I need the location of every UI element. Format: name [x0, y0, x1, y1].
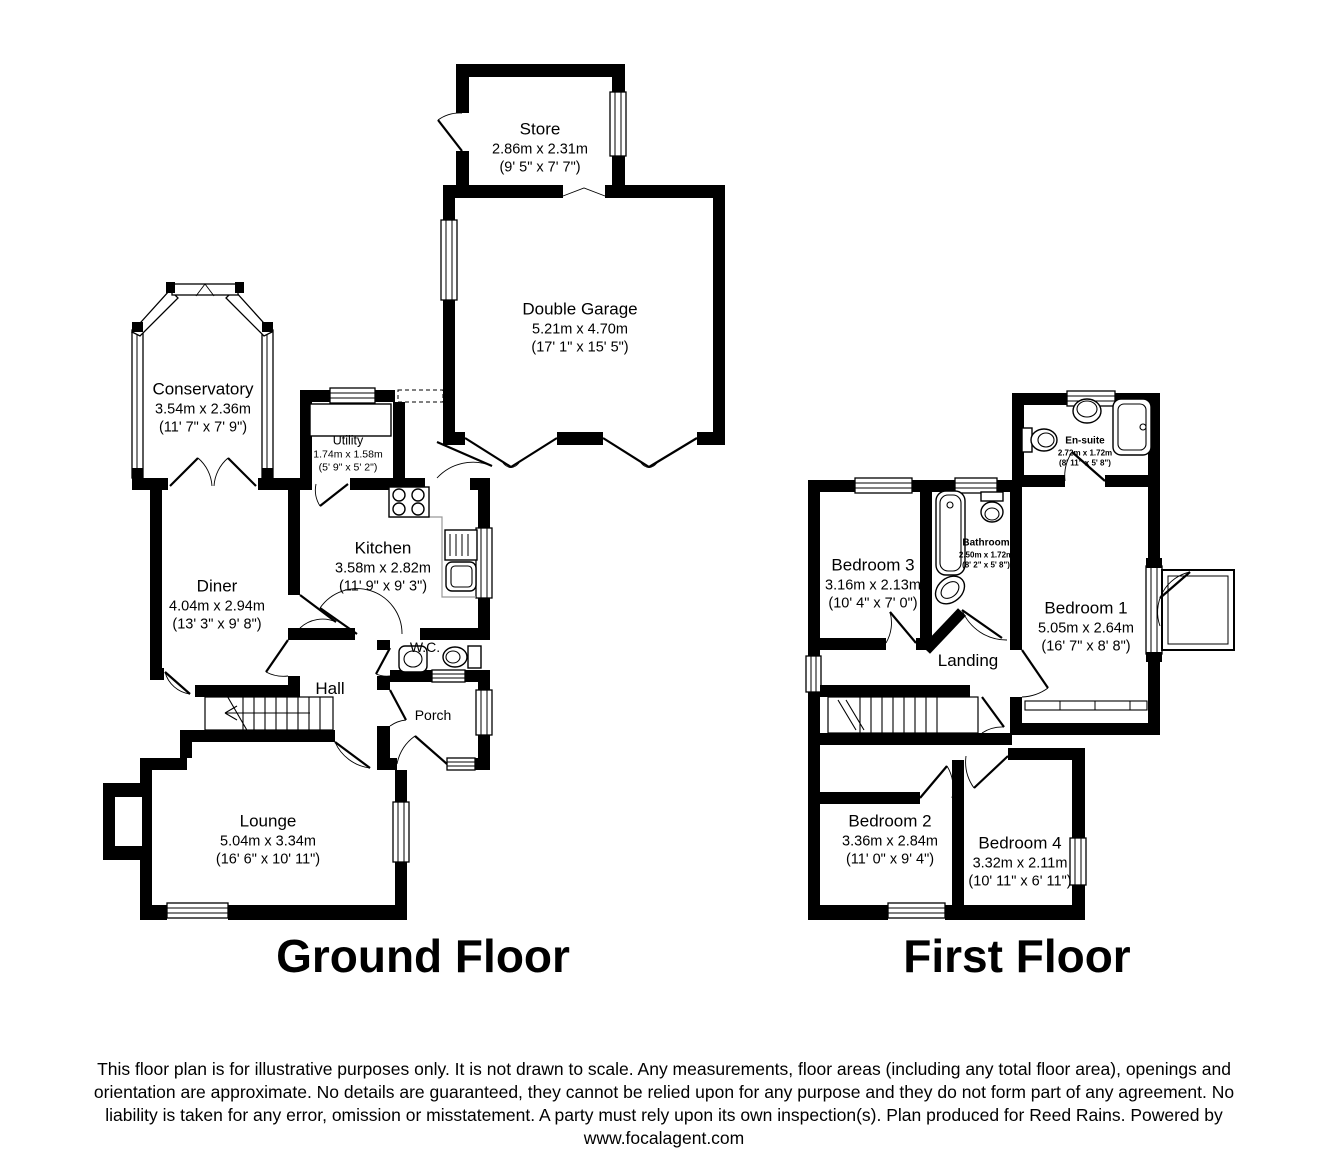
room-name: Bedroom 3: [825, 555, 921, 577]
room-dim-imperial: (17' 1" x 15' 5"): [522, 339, 637, 358]
room-label-utility: Utility 1.74m x 1.58m (5' 9" x 5' 2"): [313, 433, 382, 476]
disclaimer-line: liability is taken for any error, omissi…: [0, 1104, 1328, 1127]
room-dim-imperial: (16' 6" x 10' 11"): [216, 851, 320, 870]
ground-stairs: [140, 685, 335, 770]
room-name: Kitchen: [335, 538, 431, 560]
ground-floor-plan: [103, 64, 725, 920]
room-dim-metric: 2.86m x 2.31m: [492, 140, 588, 159]
room-dim-imperial: (16' 7" x 8' 8"): [1038, 638, 1134, 657]
room-dim-metric: 3.32m x 2.11m: [968, 854, 1071, 873]
room-label-diner: Diner 4.04m x 2.94m (13' 3" x 9' 8"): [169, 576, 265, 635]
room-dim-imperial: (8' 2" x 5' 8"): [959, 560, 1013, 570]
room-label-lounge: Lounge 5.04m x 3.34m (16' 6" x 10' 11"): [216, 811, 320, 870]
room-name: Bedroom 4: [968, 833, 1071, 855]
room-name: Utility: [313, 433, 382, 449]
room-label-hall: Hall: [315, 678, 344, 700]
room-dim-metric: 5.04m x 3.34m: [216, 832, 320, 851]
room-dim-imperial: (5' 9" x 5' 2"): [313, 462, 382, 475]
disclaimer-line: www.focalagent.com: [0, 1127, 1328, 1150]
room-dim-metric: 4.04m x 2.94m: [169, 597, 265, 616]
room-label-porch: Porch: [415, 707, 452, 725]
room-dim-metric: 3.54m x 2.36m: [152, 400, 253, 419]
room-dim-metric: 2.50m x 1.72m: [959, 550, 1013, 560]
room-name: Double Garage: [522, 299, 637, 321]
room-dim-imperial: (9' 5" x 7' 7"): [492, 159, 588, 178]
room-label-bedroom1: Bedroom 1 5.05m x 2.64m (16' 7" x 8' 8"): [1038, 598, 1134, 657]
room-dim-imperial: (11' 9" x 9' 3"): [335, 578, 431, 597]
room-label-bedroom2: Bedroom 2 3.36m x 2.84m (11' 0" x 9' 4"): [842, 811, 938, 870]
first-stairs: [820, 685, 1012, 745]
room-dim-imperial: (11' 7" x 7' 9"): [152, 419, 253, 438]
room-label-wc: W.C.: [410, 639, 440, 657]
floor-plan-page: Store 2.86m x 2.31m (9' 5" x 7' 7") Doub…: [0, 0, 1328, 1151]
room-label-conservatory: Conservatory 3.54m x 2.36m (11' 7" x 7' …: [152, 379, 253, 438]
room-dim-metric: 3.16m x 2.13m: [825, 576, 921, 595]
first-floor-title: First Floor: [903, 929, 1130, 983]
room-label-kitchen: Kitchen 3.58m x 2.82m (11' 9" x 9' 3"): [335, 538, 431, 597]
disclaimer-text: This floor plan is for illustrative purp…: [0, 1058, 1328, 1150]
disclaimer-line: This floor plan is for illustrative purp…: [0, 1058, 1328, 1081]
room-label-bathroom: Bathroom 2.50m x 1.72m (8' 2" x 5' 8"): [959, 537, 1013, 570]
room-name: Conservatory: [152, 379, 253, 401]
room-name: Bathroom: [959, 537, 1013, 550]
room-label-store: Store 2.86m x 2.31m (9' 5" x 7' 7"): [492, 119, 588, 178]
disclaimer-line: orientation are approximate. No details …: [0, 1081, 1328, 1104]
room-name: Bedroom 1: [1038, 598, 1134, 620]
room-dim-metric: 1.74m x 1.58m: [313, 449, 382, 462]
room-dim-metric: 2.72m x 1.72m: [1058, 448, 1112, 458]
room-dim-metric: 5.21m x 4.70m: [522, 320, 637, 339]
room-dim-imperial: (13' 3" x 9' 8"): [169, 616, 265, 635]
room-dim-imperial: (11' 0" x 9' 4"): [842, 851, 938, 870]
room-dim-metric: 3.36m x 2.84m: [842, 832, 938, 851]
room-name: Lounge: [216, 811, 320, 833]
room-dim-metric: 5.05m x 2.64m: [1038, 619, 1134, 638]
ground-floor-title: Ground Floor: [276, 929, 570, 983]
room-name: Bedroom 2: [842, 811, 938, 833]
room-dim-imperial: (10' 4" x 7' 0"): [825, 595, 921, 614]
room-dim-imperial: (8' 11" x 5' 8"): [1058, 458, 1112, 468]
room-label-bedroom3: Bedroom 3 3.16m x 2.13m (10' 4" x 7' 0"): [825, 555, 921, 614]
porch-room: [335, 682, 492, 770]
room-label-bedroom4: Bedroom 4 3.32m x 2.11m (10' 11" x 6' 11…: [968, 833, 1071, 892]
room-label-ensuite: En-suite 2.72m x 1.72m (8' 11" x 5' 8"): [1058, 435, 1112, 468]
room-label-double-garage: Double Garage 5.21m x 4.70m (17' 1" x 15…: [522, 299, 637, 358]
room-dim-imperial: (10' 11" x 6' 11"): [968, 873, 1071, 892]
room-dim-metric: 3.58m x 2.82m: [335, 559, 431, 578]
room-name: Diner: [169, 576, 265, 598]
room-name: En-suite: [1058, 435, 1112, 448]
room-name: Store: [492, 119, 588, 141]
room-label-landing: Landing: [938, 650, 999, 672]
